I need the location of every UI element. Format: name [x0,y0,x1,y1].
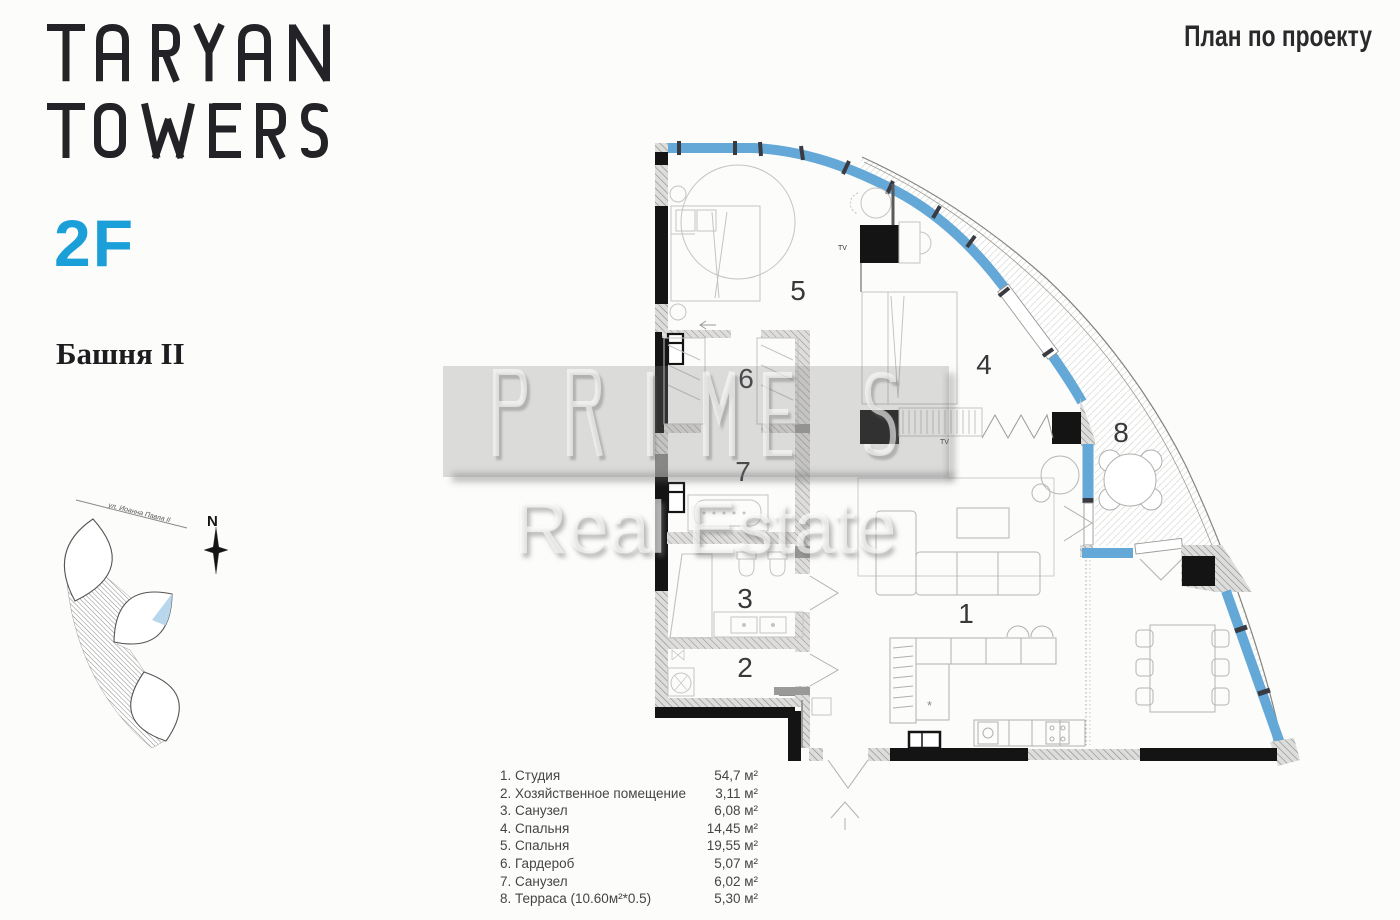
svg-text:4: 4 [976,349,992,380]
svg-text:*: * [927,698,932,713]
svg-text:3: 3 [737,583,753,614]
svg-text:TV: TV [838,245,847,252]
svg-text:8: 8 [1113,417,1129,448]
svg-text:5: 5 [790,275,806,306]
svg-text:2: 2 [737,652,753,683]
svg-text:1: 1 [958,598,974,629]
svg-text:ул. Иоанна Павла II: ул. Иоанна Павла II [107,502,171,524]
